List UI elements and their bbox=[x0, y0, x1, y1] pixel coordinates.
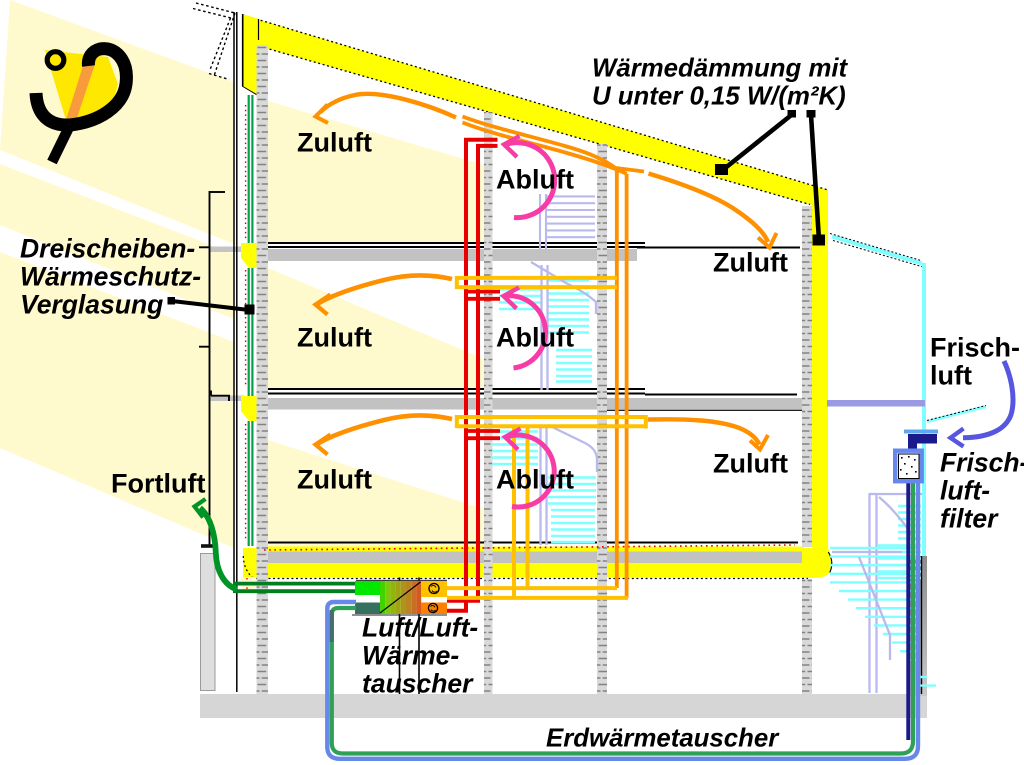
svg-text:tauscher: tauscher bbox=[362, 669, 474, 699]
svg-text:Zuluft: Zuluft bbox=[713, 449, 788, 479]
svg-text:Zuluft: Zuluft bbox=[713, 248, 788, 278]
svg-text:Wärmeschutz-: Wärmeschutz- bbox=[20, 262, 201, 292]
svg-text:luft: luft bbox=[930, 361, 972, 391]
svg-text:Verglasung: Verglasung bbox=[20, 290, 163, 320]
svg-text:Zuluft: Zuluft bbox=[297, 465, 372, 495]
svg-text:Erdwärmetauscher: Erdwärmetauscher bbox=[546, 725, 780, 753]
svg-text:Wärmedämmung mit: Wärmedämmung mit bbox=[592, 55, 849, 83]
svg-text:Zuluft: Zuluft bbox=[297, 323, 372, 353]
svg-text:Fortluft: Fortluft bbox=[111, 469, 205, 499]
svg-text:luft-: luft- bbox=[940, 476, 990, 506]
svg-text:Abluft: Abluft bbox=[496, 323, 574, 353]
svg-text:Frisch-: Frisch- bbox=[940, 448, 1024, 478]
svg-text:Frisch-: Frisch- bbox=[930, 333, 1020, 363]
svg-text:U unter 0,15 W/(m²K): U unter 0,15 W/(m²K) bbox=[592, 83, 846, 111]
svg-text:filter: filter bbox=[940, 504, 999, 534]
svg-text:Abluft: Abluft bbox=[496, 165, 574, 195]
svg-text:Zuluft: Zuluft bbox=[297, 128, 372, 158]
svg-text:Abluft: Abluft bbox=[496, 465, 574, 495]
svg-text:Luft/Luft-: Luft/Luft- bbox=[362, 613, 478, 643]
svg-text:Wärme-: Wärme- bbox=[362, 641, 459, 671]
svg-text:Dreischeiben-: Dreischeiben- bbox=[20, 234, 195, 264]
